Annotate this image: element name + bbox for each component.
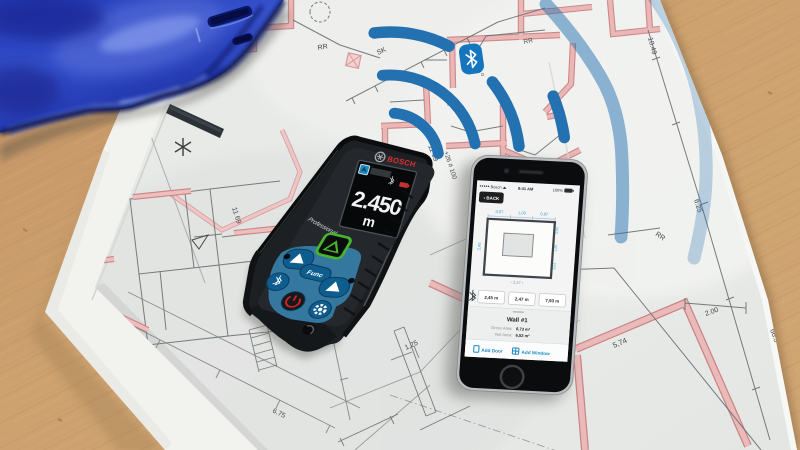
svg-text:7,93 m: 7,93 m (545, 298, 559, 304)
svg-text:0,97: 0,97 (540, 211, 549, 216)
svg-text:Wall #1: Wall #1 (507, 317, 529, 324)
svg-text:100%: 100% (553, 187, 564, 192)
svg-text:1,03: 1,03 (518, 210, 527, 215)
svg-text:0,56: 0,56 (555, 227, 560, 234)
svg-text:0,97: 0,97 (495, 209, 504, 214)
svg-text:‹ 2,47 ›: ‹ 2,47 › (510, 279, 524, 285)
svg-text:Bosch: Bosch (490, 184, 501, 190)
svg-text:2,47 m: 2,47 m (515, 296, 529, 302)
svg-text:2,45 m: 2,45 m (484, 295, 498, 301)
svg-text:Net Area:: Net Area: (495, 332, 512, 338)
svg-text:6,73 m²: 6,73 m² (516, 326, 531, 332)
svg-text:6,52 m²: 6,52 m² (515, 333, 530, 339)
svg-text:1,26: 1,26 (554, 245, 559, 252)
svg-text:‹ BACK: ‹ BACK (483, 195, 500, 201)
svg-text:9:41 AM: 9:41 AM (518, 186, 534, 192)
svg-text:0,64: 0,64 (552, 263, 557, 270)
svg-text:2,45: 2,45 (476, 242, 482, 251)
